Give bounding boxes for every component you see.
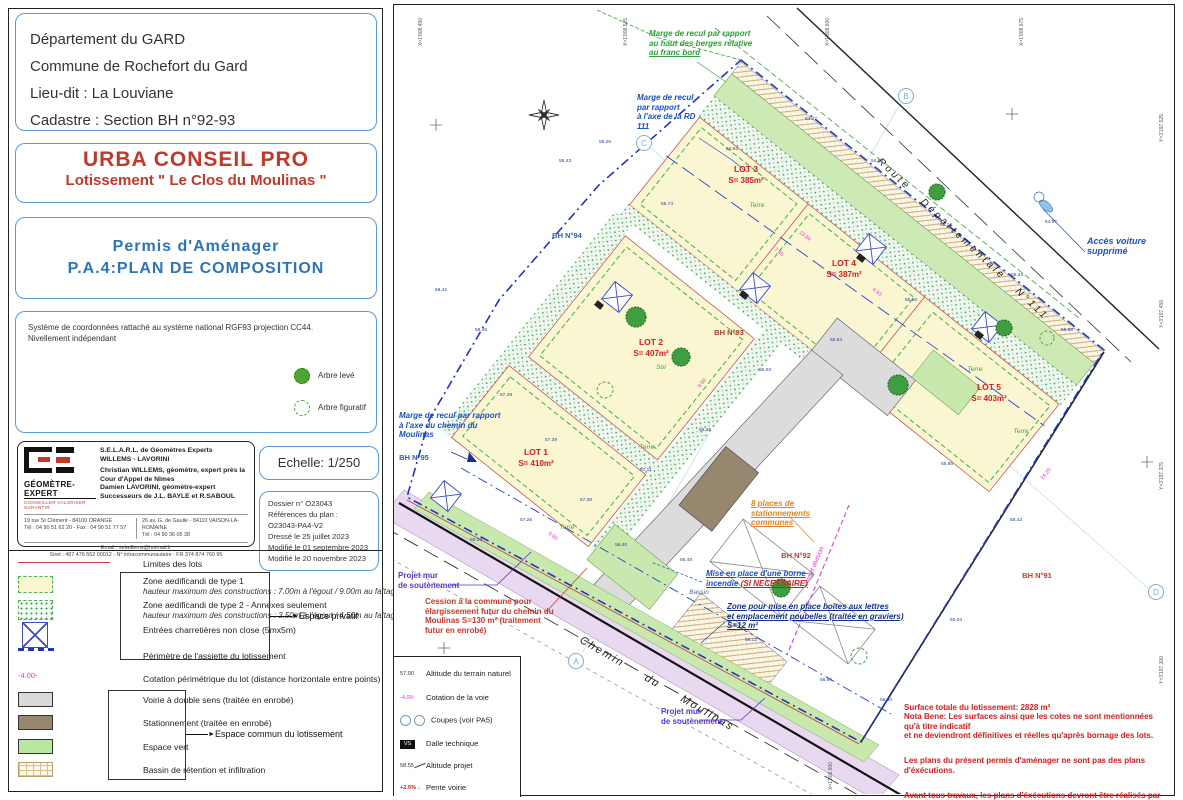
vert-swatch [18, 739, 53, 754]
cotation-swatch: -4.00- [18, 671, 38, 680]
plan-ref-label: Références du plan : [268, 509, 378, 520]
spot-elevation: 54.92 [726, 146, 738, 152]
lot-name-label: LOT 1 [524, 447, 548, 457]
private-space-bracket [120, 572, 270, 660]
permit-type: Permis d'Aménager [16, 236, 376, 258]
legend-label: Limites des lots [143, 559, 202, 569]
zone1-swatch [18, 576, 53, 593]
voirie-swatch [18, 692, 53, 707]
grid-coordinate-label: X=1'808.600 [828, 762, 834, 790]
surveyor-box: GÉOMÈTRE-EXPERT CONSEILLER VALORISER GAR… [17, 441, 255, 547]
spot-elevation: 54.47 [805, 116, 817, 122]
surveyor-brand: GÉOMÈTRE-EXPERT [24, 480, 96, 499]
ground-label: Terre [560, 524, 575, 531]
lot-name-label: LOT 2 [639, 337, 663, 347]
spot-elevation: 58.46 [475, 327, 487, 333]
parcel-label: BH N°92 [781, 551, 811, 560]
lot-area-label: S= 407m² [633, 349, 669, 358]
common-space-label: Espace commun du lotissement [215, 729, 343, 739]
spot-elevation: 55.84 [830, 337, 842, 343]
spot-elevation: 55.94 [820, 677, 832, 683]
parcel-label: BH N°94 [552, 231, 583, 240]
date-modified2: Modifié le 20 novembre 2023 [268, 553, 378, 564]
site-plan-svg: Projet division [394, 5, 1173, 794]
section-marker-letter: C [641, 139, 647, 148]
grid-coordinate-label: Y=3'197.525 [1159, 114, 1165, 142]
dossier-box: Dossier n° O23043 Références du plan : O… [259, 491, 379, 571]
plan-sheet: Département du GARD Commune de Rochefort… [0, 0, 1183, 800]
spot-elevation: 55.50 [905, 297, 917, 303]
spot-elevation: 55.43 [1011, 272, 1023, 278]
permit-box: Permis d'Aménager P.A.4:PLAN DE COMPOSIT… [15, 217, 377, 299]
departement-line: Département du GARD [30, 26, 376, 53]
grid-coordinate-label: X=1'808.600 [825, 18, 831, 46]
parcel-label: BH N°95 [399, 453, 429, 462]
coord-system-note: Système de coordonnées rattaché au systè… [28, 322, 376, 333]
ground-label: Terre [968, 366, 983, 373]
coordinate-note-box: Système de coordonnées rattaché au systè… [15, 311, 377, 433]
spot-elevation: 57.11 [640, 467, 652, 473]
lotissement-name: Lotissement " Le Clos du Moulinas " [16, 172, 376, 189]
bassin-swatch [18, 762, 53, 777]
tree-legend-figurative: Arbre figuratif [294, 400, 366, 416]
firm-line2: WILLEMS - LAVORINI [100, 456, 248, 465]
grid-coordinate-label: X=1'808.675 [1019, 18, 1025, 46]
south-lot-limit [407, 500, 859, 744]
xbox-swatch [22, 622, 48, 648]
spot-elevation: 57.48 [500, 392, 512, 398]
grid-coordinate-label: X=1'808.525 [623, 18, 629, 46]
lot-name-label: LOT 3 [734, 164, 758, 174]
line-red-swatch [18, 562, 110, 563]
surveyed-tree-icon [294, 368, 310, 384]
legend-label: Cotation périmétrique du lot (distance h… [143, 674, 380, 684]
spot-elevation: 58.03 [470, 537, 482, 543]
zone2-swatch [18, 600, 53, 620]
logo-g-glyph [24, 447, 54, 473]
figurative-tree-icon [294, 400, 310, 416]
ground-label: Sol [656, 364, 666, 371]
common-space-arrow [186, 734, 208, 735]
client-title: URBA CONSEIL PRO [16, 148, 376, 172]
office-orange: 19 rue St Clément - 84100 ORANGE Tél : 0… [24, 518, 136, 539]
ground-label: Terre [750, 202, 765, 209]
section-marker-letter: A [573, 657, 579, 666]
spot-elevation: 56.46 [699, 427, 711, 433]
dash-blue-swatch [18, 648, 54, 651]
date-modified1: Modifié le 01 septembre 2023 [268, 542, 378, 553]
spot-elevation: 55.58 [1061, 327, 1073, 333]
surveyor-tagline: CONSEILLER VALORISER GARANTIR [24, 500, 96, 510]
stationnement-swatch [18, 715, 53, 730]
spot-elevation: 58.42 [435, 287, 447, 293]
logo-e-glyph [56, 447, 76, 473]
spot-elevation: 55.60 [880, 697, 892, 703]
lot-area-label: S= 403m² [971, 394, 1007, 403]
lot-name-label: LOT 5 [977, 382, 1001, 392]
dimension-label: 24.20 [1040, 467, 1053, 481]
lieu-dit-line: Lieu-dit : La Louviane [30, 80, 376, 107]
lot-area-label: S= 385m² [728, 176, 764, 185]
spot-elevation: 55.43 [559, 158, 571, 164]
spot-elevation: 57.26 [520, 517, 532, 523]
spot-elevation: 56.40 [615, 542, 627, 548]
north-arrow [529, 100, 559, 130]
parcel-label: BH N°91 [1022, 571, 1052, 580]
spot-elevation: 55.85 [941, 461, 953, 467]
ground-label: Terre [640, 444, 655, 451]
legend-divider [8, 550, 383, 551]
spot-elevation: 57.39 [545, 437, 557, 443]
spot-elevation: 57.38 [580, 497, 592, 503]
grid-coordinate-label: Y=3'197.300 [1159, 656, 1165, 684]
spot-elevation: 54.66 [871, 158, 883, 164]
expert2: Damien LAVORINI, géomètre-expert [100, 484, 248, 493]
cadastre-line: Cadastre : Section BH n°92-93 [30, 107, 376, 134]
grid-coordinate-label: Y=3'197.450 [1159, 300, 1165, 328]
berges-line [597, 10, 741, 60]
scale-box: Echelle: 1/250 [259, 446, 379, 480]
spot-elevation: 55.16 [940, 222, 952, 228]
grid-coordinate-label: X=1'808.450 [418, 18, 424, 46]
ground-label: Terre [1014, 428, 1029, 435]
expert1: Christian WILLEMS, géomètre, expert près… [100, 467, 248, 484]
section-marker-letter: B [903, 92, 908, 101]
lot-area-label: S= 387m² [826, 270, 862, 279]
parcel-label: BH N°93 [714, 328, 744, 337]
surveyor-siret: Siret : 487 476 552 00012 - N° intracomm… [24, 552, 248, 559]
lot-area-label: S= 410m² [518, 459, 554, 468]
dimension-label: 5.00 [547, 531, 559, 542]
plan-title: P.A.4:PLAN DE COMPOSITION [16, 258, 376, 280]
levelling-note: Nivellement indépendant [28, 333, 376, 344]
client-box: URBA CONSEIL PRO Lotissement " Le Clos d… [15, 143, 377, 203]
date-dressed: Dressé le 25 juillet 2023 [268, 531, 378, 542]
projet-division-line [787, 505, 849, 655]
successors: Successeurs de J.L. BAYLE et R.SABOUL [100, 493, 248, 502]
lot-name-label: LOT 4 [832, 258, 856, 268]
firm-line1: S.E.L.A.R.L. de Géomètres Experts [100, 447, 248, 456]
spot-elevation: 55.43 [1010, 517, 1022, 523]
surveyor-logo: GÉOMÈTRE-EXPERT CONSEILLER VALORISER GAR… [24, 447, 96, 510]
office-vaison: 26 av. G. de Gaulle - 84110 VAISON-LA-RO… [136, 518, 248, 539]
spot-elevation: 55.04 [950, 617, 962, 623]
ground-label: Bassin [689, 589, 709, 596]
dossier-number: Dossier n° O23043 [268, 498, 378, 509]
location-box: Département du GARD Commune de Rochefort… [15, 13, 377, 131]
common-space-bracket [108, 690, 186, 780]
tree-legend-surveyed: Arbre levé [294, 368, 354, 384]
spot-elevation: 55.74 [661, 201, 673, 207]
spot-elevation: 56.48 [680, 557, 692, 563]
private-space-label: Espace privatif [299, 611, 358, 621]
private-space-arrow [270, 616, 292, 617]
spot-elevation: 54.97 [1045, 219, 1057, 225]
spot-elevation: 56.12 [745, 637, 757, 643]
plan-ref: O23043-PA4-V2 [268, 520, 378, 531]
spot-elevation: 56.03 [759, 367, 771, 373]
grid-coordinate-label: Y=3'197.375 [1159, 462, 1165, 490]
spot-elevation: 55.26 [599, 139, 611, 145]
commune-line: Commune de Rochefort du Gard [30, 53, 376, 80]
section-marker-letter: D [1153, 588, 1159, 597]
removed-access-circle [1034, 192, 1044, 202]
plan-drawing-panel: Projet division [393, 4, 1175, 796]
